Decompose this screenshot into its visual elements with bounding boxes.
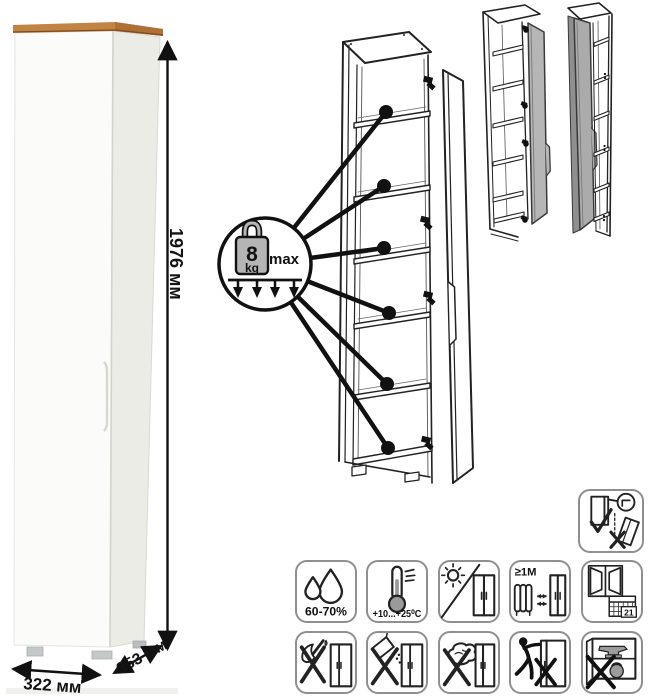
temperature-label: +10...+25⁰C (373, 609, 422, 620)
cabinet-photo (0, 0, 200, 700)
acclimatization-days-label: 21 (624, 607, 634, 617)
spacing-arrows (537, 594, 546, 606)
shelf-load-diagram: 8 kg max (200, 15, 490, 520)
no-abrasive-cleaners-icon (366, 631, 428, 694)
temperature-icon: +10...+25⁰C (366, 560, 428, 623)
height-dimension-label: 1976 мм (165, 228, 186, 300)
variant-right-hinged-cabinet (476, 2, 562, 242)
heat-source-distance-icon: ≥1M (509, 560, 571, 623)
humidity-label: 60-70% (305, 604, 347, 618)
max-label-text: max (269, 251, 300, 268)
distance-label: ≥1M (515, 566, 537, 578)
cabinet-foot (27, 647, 43, 656)
cabinet-door-front (14, 31, 113, 647)
no-wet-sponge-icon (438, 631, 500, 694)
shelf-point-markers (377, 105, 396, 455)
cabinet-foot (92, 651, 112, 659)
ventilation-acclimatization-icon: 21 (581, 560, 643, 623)
no-sharp-tools-icon (295, 631, 357, 694)
weight-unit-text: kg (245, 261, 259, 275)
variant-left-hinged-cabinet (560, 0, 648, 246)
wall-anchor-safety-icon (578, 489, 644, 553)
variant-door-right (528, 23, 550, 224)
cabinet-side-panel (110, 31, 160, 647)
variant-shelves (493, 45, 524, 223)
no-dragging-icon (509, 631, 571, 694)
person-figure (517, 637, 539, 677)
radiator (515, 585, 532, 615)
kettlebell (610, 663, 623, 677)
humidity-icon: 60-70% (295, 560, 357, 623)
variant-door-left (568, 16, 597, 233)
width-dimension-label: 322 мм (23, 674, 83, 698)
weight-limit-callout: 8 kg max (219, 218, 311, 310)
furniture-dimension-sheet: 1976 мм 322 мм 353 мм (0, 0, 648, 700)
open-cabinet-lineart (339, 32, 473, 483)
open-door (443, 70, 473, 483)
no-heavy-load-icon (581, 631, 643, 694)
no-direct-sunlight-icon (438, 560, 500, 623)
open-window (589, 566, 623, 596)
drip (325, 641, 327, 646)
hinge-screw-dots (603, 73, 606, 221)
